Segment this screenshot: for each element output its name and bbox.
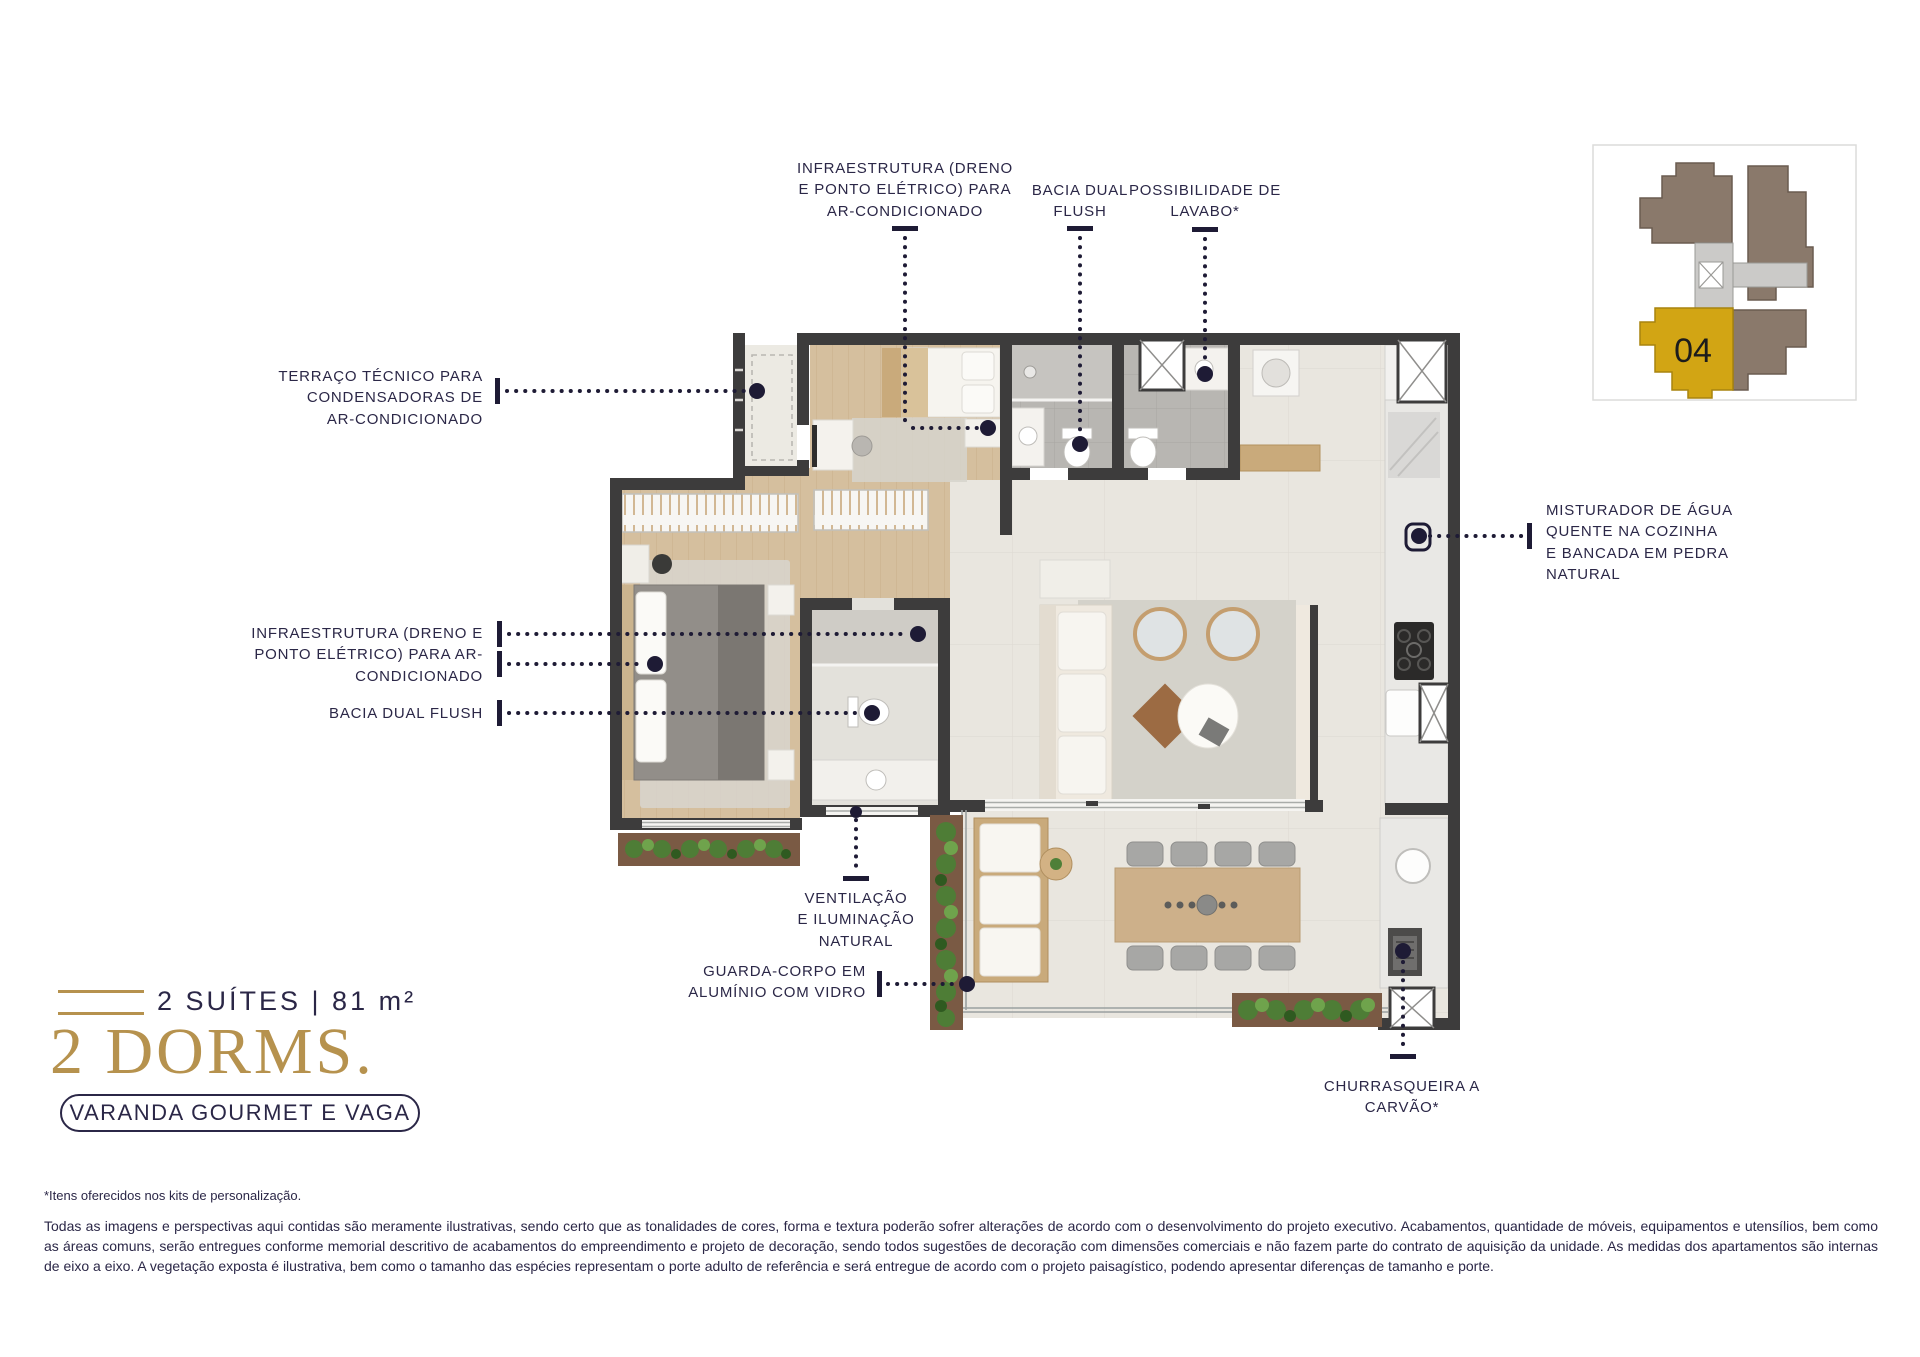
wall-stub-left: [950, 800, 985, 812]
wall-terraco-right: [797, 333, 809, 425]
headboard: [622, 585, 634, 780]
kitchen-sink: [1386, 690, 1420, 736]
callout-guarda-corpo: GUARDA-CORPO EM ALUMÍNIO COM VIDRO: [566, 961, 866, 1004]
dining-chair: [1127, 842, 1163, 866]
door-gap: [852, 598, 894, 610]
wall-terraco-right2: [797, 460, 809, 476]
wall-right: [1448, 333, 1460, 1030]
leader-ventilacao: [843, 806, 869, 881]
suites-area-line: 2 SUÍTES | 81 m²: [157, 986, 416, 1017]
tv-panel: [1296, 605, 1310, 803]
door-handle: [1198, 804, 1210, 809]
shaft: [1398, 340, 1446, 402]
door-gap: [1030, 468, 1068, 480]
dining-chair: [1171, 842, 1207, 866]
badge-label: VARANDA GOURMET E VAGA: [69, 1100, 410, 1126]
dining-chair: [1259, 946, 1295, 970]
callout-bacia-dual-flush-left: BACIA DUAL FLUSH: [183, 703, 483, 724]
drain: [1024, 366, 1036, 378]
cushion: [980, 824, 1040, 872]
wall-masterbath-left: [800, 598, 812, 817]
wall-kitchen-varanda: [1385, 803, 1448, 815]
washer-door: [1262, 359, 1290, 387]
gold-rule-1: [58, 990, 144, 993]
decor: [1165, 902, 1172, 909]
decor: [1219, 902, 1226, 909]
desk-chair: [652, 554, 672, 574]
dorms-title: 2 DORMS.: [50, 1014, 375, 1090]
tv-panel-edge: [1310, 605, 1318, 803]
shaft: [1140, 340, 1184, 390]
pillow: [636, 680, 666, 762]
kits-footnote: *Itens oferecidos nos kits de personaliz…: [44, 1188, 301, 1203]
wall-masterbath-right: [938, 598, 950, 817]
armchair: [1135, 609, 1185, 659]
cushion: [980, 876, 1040, 924]
leader-terraco: [495, 378, 765, 404]
callout-ventilacao: VENTILAÇÃO E ILUMINAÇÃO NATURAL: [756, 888, 956, 952]
callout-misturador: MISTURADOR DE ÁGUA QUENTE NA COZINHA E B…: [1546, 500, 1766, 585]
decor: [1231, 902, 1238, 909]
toilet: [1130, 437, 1156, 467]
sliding-door: [985, 799, 1305, 811]
cushion: [980, 928, 1040, 976]
cushion: [1058, 612, 1106, 670]
console: [1040, 560, 1110, 598]
callout-terraco-tecnico: TERRAÇO TÉCNICO PARA CONDENSADORAS DE AR…: [183, 366, 483, 430]
door-handle: [1086, 801, 1098, 806]
wall-left: [610, 478, 622, 830]
pillow: [962, 385, 994, 413]
plant-pot: [1050, 858, 1062, 870]
cushion: [1058, 736, 1106, 794]
varanda-gourmet-badge: VARANDA GOURMET E VAGA: [60, 1094, 420, 1132]
desk-chair: [852, 436, 872, 456]
centerpiece: [1197, 895, 1217, 915]
wall-bath-divider: [1112, 345, 1124, 470]
callout-churrasqueira: CHURRASQUEIRA A CARVÃO*: [1292, 1076, 1512, 1119]
wall-master-top: [610, 478, 745, 490]
key-core-h: [1733, 263, 1807, 287]
desk: [813, 420, 853, 470]
shaft: [1420, 684, 1448, 742]
basin: [866, 770, 886, 790]
closet: [622, 494, 798, 532]
bed-throw: [718, 585, 764, 780]
dining-chair: [1127, 946, 1163, 970]
dining-chair: [1215, 842, 1251, 866]
cushion: [1058, 674, 1106, 732]
pillow: [962, 352, 994, 380]
wall-suite2-right: [1000, 345, 1012, 535]
wall-stub-right: [1305, 800, 1323, 812]
sofa-back: [1040, 605, 1056, 800]
bed-bench: [882, 348, 902, 417]
round-sink: [1396, 849, 1430, 883]
basin: [1019, 427, 1037, 445]
bench: [1240, 445, 1320, 471]
shaft: [1390, 988, 1434, 1028]
legal-disclaimer: Todas as imagens e perspectivas aqui con…: [44, 1216, 1878, 1276]
callout-possibilidade-lavabo: POSSIBILIDADE DE LAVABO*: [1095, 180, 1315, 223]
closet: [814, 490, 928, 530]
nightstand: [768, 585, 794, 615]
tv: [812, 425, 817, 467]
dining-chair: [1259, 842, 1295, 866]
key-unit-number: 04: [1674, 332, 1712, 370]
callout-infra-ac-left: INFRAESTRUTURA (DRENO E PONTO ELÉTRICO) …: [183, 623, 483, 687]
dining-chair: [1215, 946, 1251, 970]
wall-lavabo-right: [1228, 345, 1240, 470]
dining-chair: [1171, 946, 1207, 970]
decor: [1177, 902, 1184, 909]
key-elevator: [1699, 262, 1723, 288]
door-gap: [1148, 468, 1186, 480]
page: 04 INFRAESTRUTURA (DRENO E PONTO ELÉTRIC…: [0, 0, 1920, 1357]
nightstand: [768, 750, 794, 780]
key-plan: 04: [1593, 145, 1856, 400]
wall-terraco-left: [733, 333, 745, 478]
wall-top: [797, 333, 1460, 345]
decor: [1189, 902, 1196, 909]
armchair: [1208, 609, 1258, 659]
